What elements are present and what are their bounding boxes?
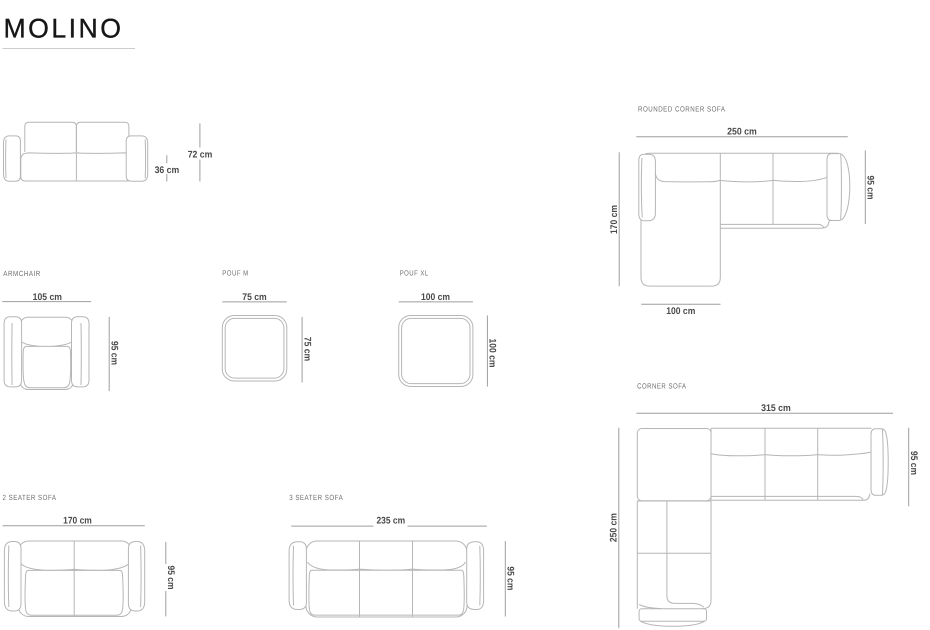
svg-text:105 cm: 105 cm: [33, 292, 62, 303]
svg-text:72 cm: 72 cm: [188, 149, 213, 160]
svg-text:ROUNDED CORNER SOFA: ROUNDED CORNER SOFA: [638, 105, 726, 114]
svg-text:95 cm: 95 cm: [908, 451, 919, 475]
svg-text:ARMCHAIR: ARMCHAIR: [3, 269, 41, 278]
svg-text:95 cm: 95 cm: [865, 176, 876, 200]
svg-text:170 cm: 170 cm: [609, 205, 620, 234]
svg-text:100 cm: 100 cm: [487, 339, 498, 368]
svg-text:CORNER SOFA: CORNER SOFA: [637, 382, 687, 391]
svg-text:36 cm: 36 cm: [155, 165, 180, 176]
svg-text:250 cm: 250 cm: [608, 513, 619, 542]
svg-text:100 cm: 100 cm: [666, 306, 695, 317]
svg-text:100 cm: 100 cm: [421, 292, 450, 303]
svg-text:POUF XL: POUF XL: [400, 269, 429, 278]
svg-text:250 cm: 250 cm: [727, 126, 757, 137]
svg-text:MOLINO: MOLINO: [4, 14, 124, 44]
svg-text:75 cm: 75 cm: [242, 292, 266, 303]
svg-text:170 cm: 170 cm: [63, 516, 92, 527]
svg-text:95 cm: 95 cm: [505, 566, 516, 590]
svg-text:2 SEATER SOFA: 2 SEATER SOFA: [3, 493, 57, 502]
svg-text:3 SEATER SOFA: 3 SEATER SOFA: [289, 493, 343, 502]
svg-text:75 cm: 75 cm: [301, 337, 312, 361]
svg-text:95 cm: 95 cm: [165, 566, 176, 590]
svg-text:315 cm: 315 cm: [761, 403, 791, 414]
svg-text:235 cm: 235 cm: [376, 516, 405, 527]
svg-text:95 cm: 95 cm: [108, 341, 119, 365]
svg-text:POUF M: POUF M: [222, 269, 248, 278]
